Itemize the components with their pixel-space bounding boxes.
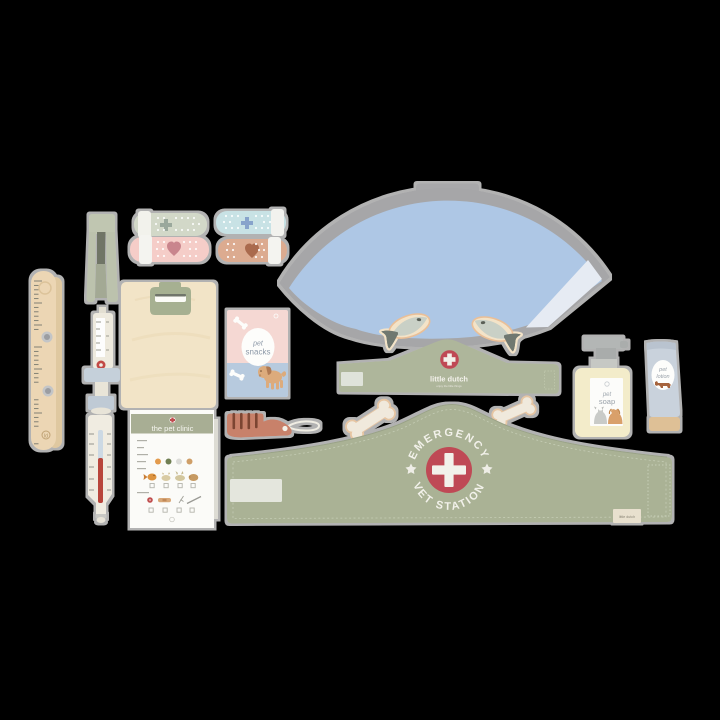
svg-text:little dutch: little dutch (619, 515, 635, 519)
svg-text:snacks: snacks (246, 348, 271, 357)
svg-text:little dutch: little dutch (430, 375, 468, 384)
svg-text:enjoy the little things: enjoy the little things (436, 384, 462, 388)
svg-text:the pet clinic: the pet clinic (152, 424, 194, 433)
svg-text:pet: pet (658, 367, 667, 373)
svg-text:soap: soap (599, 397, 615, 406)
svg-text:pet: pet (252, 341, 264, 348)
svg-text:lotion: lotion (656, 374, 669, 380)
svg-text:ld: ld (44, 434, 48, 440)
